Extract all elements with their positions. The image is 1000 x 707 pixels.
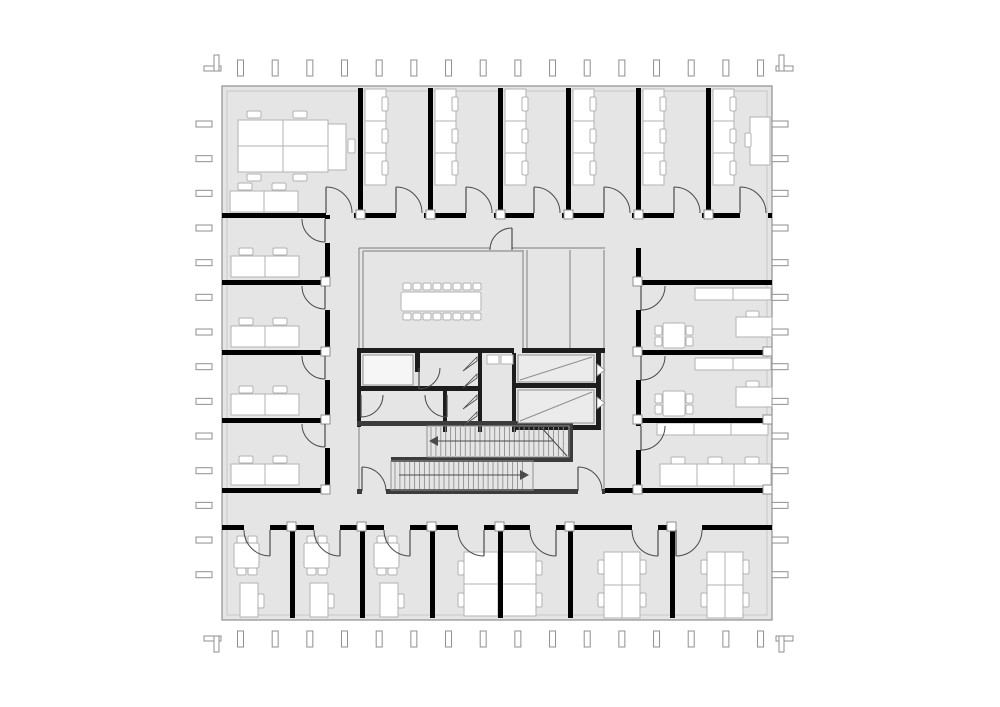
chair	[686, 337, 693, 346]
desk	[622, 552, 640, 585]
chair	[522, 129, 528, 143]
desk	[231, 326, 265, 347]
desk	[464, 584, 498, 616]
chair	[452, 161, 458, 175]
chair	[398, 594, 404, 608]
mullion-tick	[584, 631, 590, 647]
desk	[265, 326, 299, 347]
shelf	[694, 423, 731, 435]
chair	[701, 593, 707, 607]
chair	[473, 313, 481, 320]
shelf	[733, 358, 771, 370]
desk	[265, 464, 299, 485]
mullion-tick	[196, 294, 212, 300]
door-jamb	[704, 210, 713, 219]
door-jamb	[495, 522, 504, 531]
mullion-tick	[550, 631, 556, 647]
wall	[498, 88, 503, 215]
service-rooms	[363, 355, 413, 385]
chair	[388, 568, 397, 575]
wall	[222, 525, 244, 530]
mullion-tick	[196, 537, 212, 543]
mullion-tick	[654, 60, 660, 76]
chair	[248, 568, 257, 575]
desk	[240, 583, 258, 617]
mullion-tick	[619, 60, 625, 76]
mullion-tick	[772, 190, 788, 196]
mullion-tick	[272, 60, 278, 76]
core-wall	[357, 348, 514, 353]
chair	[443, 313, 451, 320]
wall	[325, 215, 330, 219]
mullion-tick	[619, 631, 625, 647]
mullion-tick	[307, 60, 313, 76]
sink	[501, 355, 513, 364]
door-jamb	[357, 522, 366, 531]
mullion-tick	[446, 60, 452, 76]
core-wall	[516, 383, 600, 388]
mullion-tick	[515, 60, 521, 76]
table	[304, 543, 329, 568]
mullion-tick	[272, 631, 278, 647]
mullion-tick	[376, 631, 382, 647]
chair	[388, 536, 397, 543]
chair	[660, 161, 666, 175]
chair	[273, 386, 287, 393]
wall	[222, 488, 327, 493]
desk	[707, 552, 725, 585]
chair	[701, 560, 707, 574]
chair	[708, 457, 722, 464]
chair	[237, 568, 246, 575]
chair	[743, 593, 749, 607]
wall	[636, 450, 641, 488]
chair	[247, 111, 261, 118]
wall	[636, 280, 772, 285]
chair	[730, 129, 736, 143]
chair	[248, 536, 257, 543]
chair	[598, 560, 604, 574]
wall	[222, 213, 326, 218]
chair	[453, 283, 461, 290]
core-wall	[512, 353, 516, 432]
chair	[307, 568, 316, 575]
desk	[725, 585, 743, 618]
chair	[433, 313, 441, 320]
desk	[283, 120, 328, 146]
chair	[745, 457, 759, 464]
mullion-tick	[342, 631, 348, 647]
shelf	[731, 423, 768, 435]
desk	[660, 464, 697, 486]
door-jamb	[356, 210, 365, 219]
door-jamb	[496, 210, 505, 219]
mullion-tick	[772, 468, 788, 474]
mullion-tick	[196, 260, 212, 266]
chair	[273, 456, 287, 463]
desk	[328, 124, 346, 170]
chair	[598, 593, 604, 607]
mullion-tick	[723, 60, 729, 76]
chair	[382, 161, 388, 175]
chair	[273, 318, 287, 325]
chair	[318, 536, 327, 543]
door-jamb	[321, 347, 330, 356]
chair	[443, 283, 451, 290]
door-jamb	[426, 210, 435, 219]
door-jamb	[667, 522, 676, 531]
chair	[382, 97, 388, 111]
wall	[636, 88, 641, 215]
service-room-floor	[363, 355, 413, 385]
chair	[273, 248, 287, 255]
chair	[433, 283, 441, 290]
wall	[360, 527, 365, 618]
corner-mullion-tick	[214, 636, 219, 652]
chair	[590, 97, 596, 111]
door-jamb	[565, 522, 574, 531]
core-wall	[522, 348, 605, 353]
wall	[702, 525, 772, 530]
mullion-tick	[196, 502, 212, 508]
table	[234, 543, 259, 568]
desk	[502, 584, 536, 616]
shelf	[733, 288, 771, 300]
wall	[568, 527, 573, 618]
door-jamb	[763, 347, 772, 356]
mullion-tick	[196, 121, 212, 127]
desk	[736, 317, 772, 337]
chair	[686, 326, 693, 335]
table	[374, 543, 399, 568]
wall	[768, 213, 772, 218]
desk	[734, 464, 771, 486]
door-jamb	[321, 415, 330, 424]
desk	[604, 585, 622, 618]
chair	[272, 183, 286, 190]
chair	[473, 283, 481, 290]
corner-mullion-tick	[214, 55, 219, 71]
door-jamb	[763, 485, 772, 494]
mullion-tick	[196, 398, 212, 404]
mullion-tick	[238, 631, 244, 647]
wall	[325, 448, 330, 488]
wall	[222, 350, 327, 355]
chair	[377, 568, 386, 575]
chair	[660, 97, 666, 111]
chair	[745, 133, 751, 147]
chair	[423, 313, 431, 320]
mullion-tick	[772, 364, 788, 370]
chair	[413, 283, 421, 290]
chair	[293, 111, 307, 118]
chair	[403, 313, 411, 320]
chair	[318, 568, 327, 575]
mullion-tick	[550, 60, 556, 76]
chair	[348, 139, 355, 153]
desk	[238, 146, 283, 172]
mullion-tick	[196, 225, 212, 231]
chair	[238, 183, 252, 190]
desk	[238, 120, 283, 146]
chair	[686, 405, 693, 414]
corner-mullion-tick	[779, 636, 784, 652]
wall	[222, 418, 327, 423]
shelf	[695, 288, 733, 300]
shelf	[695, 358, 733, 370]
door-jamb	[633, 277, 642, 286]
desk	[464, 552, 498, 584]
door-jamb	[633, 415, 642, 424]
mullion-tick	[307, 631, 313, 647]
shelf	[657, 423, 694, 435]
table	[663, 323, 685, 348]
desk	[231, 394, 265, 415]
mullion-tick	[758, 631, 764, 647]
mullion-tick	[480, 60, 486, 76]
chair	[730, 97, 736, 111]
chair	[522, 161, 528, 175]
mullion-tick	[411, 631, 417, 647]
door-jamb	[287, 522, 296, 531]
desk	[502, 552, 536, 584]
wall	[290, 527, 295, 618]
floor-plan-sheet	[0, 0, 1000, 707]
mullion-tick	[772, 225, 788, 231]
mullion-tick	[446, 631, 452, 647]
wall	[636, 418, 772, 423]
wall	[498, 527, 503, 618]
chair	[423, 283, 431, 290]
chair	[746, 311, 759, 317]
wall	[706, 88, 711, 215]
chair	[239, 456, 253, 463]
table	[401, 292, 481, 311]
wall	[484, 525, 530, 530]
chair	[452, 129, 458, 143]
mullion-tick	[772, 121, 788, 127]
chair	[655, 326, 662, 335]
mullion-tick	[480, 631, 486, 647]
desk	[310, 583, 328, 617]
chair	[536, 561, 542, 575]
mullion-tick	[196, 572, 212, 578]
mullion-tick	[196, 329, 212, 335]
door-jamb	[564, 210, 573, 219]
chair	[640, 593, 646, 607]
door-jamb	[321, 485, 330, 494]
chair	[590, 129, 596, 143]
chair	[655, 394, 662, 403]
desk	[380, 583, 398, 617]
desk	[604, 552, 622, 585]
desk	[265, 394, 299, 415]
floor-plan-drawing	[0, 0, 1000, 707]
mullion-tick	[584, 60, 590, 76]
chair	[746, 381, 759, 387]
chair	[239, 318, 253, 325]
wall	[358, 88, 363, 215]
mullion-tick	[772, 260, 788, 266]
chair	[239, 248, 253, 255]
chair	[463, 283, 471, 290]
mullion-tick	[196, 156, 212, 162]
chair	[655, 405, 662, 414]
mullion-tick	[772, 537, 788, 543]
mullion-tick	[758, 60, 764, 76]
mullion-tick	[772, 572, 788, 578]
core-wall	[596, 348, 601, 430]
mullion-tick	[772, 433, 788, 439]
door-jamb	[633, 485, 642, 494]
wall	[222, 280, 327, 285]
chair	[458, 561, 464, 575]
mullion-tick	[376, 60, 382, 76]
chair	[452, 97, 458, 111]
stair-wall-band	[357, 489, 362, 494]
chair	[403, 283, 411, 290]
sink	[487, 355, 499, 364]
door-jamb	[763, 415, 772, 424]
wall	[605, 488, 772, 493]
wall	[428, 88, 433, 215]
desk	[231, 464, 265, 485]
mullion-tick	[772, 398, 788, 404]
chair	[655, 337, 662, 346]
wall	[430, 527, 435, 618]
corner-mullion-tick	[779, 55, 784, 71]
door-jamb	[633, 347, 642, 356]
chair	[590, 161, 596, 175]
chair	[247, 174, 261, 181]
mullion-tick	[411, 60, 417, 76]
mullion-tick	[772, 329, 788, 335]
chair	[453, 313, 461, 320]
mullion-tick	[342, 60, 348, 76]
chair	[413, 313, 421, 320]
wall	[670, 527, 675, 618]
door-jamb	[427, 522, 436, 531]
door-jamb	[634, 210, 643, 219]
mullion-tick	[723, 631, 729, 647]
mullion-tick	[688, 60, 694, 76]
chair	[463, 313, 471, 320]
desk	[736, 387, 772, 407]
chair	[730, 161, 736, 175]
wall	[566, 88, 571, 215]
desk	[231, 256, 265, 277]
mullion-tick	[238, 60, 244, 76]
chair	[743, 560, 749, 574]
mullion-tick	[196, 190, 212, 196]
table	[663, 391, 685, 416]
desk	[707, 585, 725, 618]
chair	[640, 560, 646, 574]
mullion-tick	[196, 433, 212, 439]
chair	[671, 457, 685, 464]
chair	[458, 593, 464, 607]
desk	[283, 146, 328, 172]
desk	[697, 464, 734, 486]
core-wall	[478, 353, 482, 432]
chair	[536, 593, 542, 607]
chair	[686, 394, 693, 403]
chair	[522, 97, 528, 111]
mullion-tick	[772, 156, 788, 162]
wall	[636, 350, 772, 355]
chair	[382, 129, 388, 143]
chair	[328, 594, 334, 608]
mullion-tick	[772, 502, 788, 508]
desk	[622, 585, 640, 618]
mullion-tick	[654, 631, 660, 647]
mullion-tick	[196, 364, 212, 370]
mullion-tick	[196, 468, 212, 474]
mullion-tick	[515, 631, 521, 647]
chair	[660, 129, 666, 143]
desk	[264, 191, 298, 212]
desk	[265, 256, 299, 277]
chair	[239, 386, 253, 393]
desk	[230, 191, 264, 212]
chair	[258, 594, 264, 608]
door-jamb	[321, 277, 330, 286]
chair	[293, 174, 307, 181]
desk	[725, 552, 743, 585]
desk	[750, 117, 770, 165]
mullion-tick	[772, 294, 788, 300]
mullion-tick	[688, 631, 694, 647]
